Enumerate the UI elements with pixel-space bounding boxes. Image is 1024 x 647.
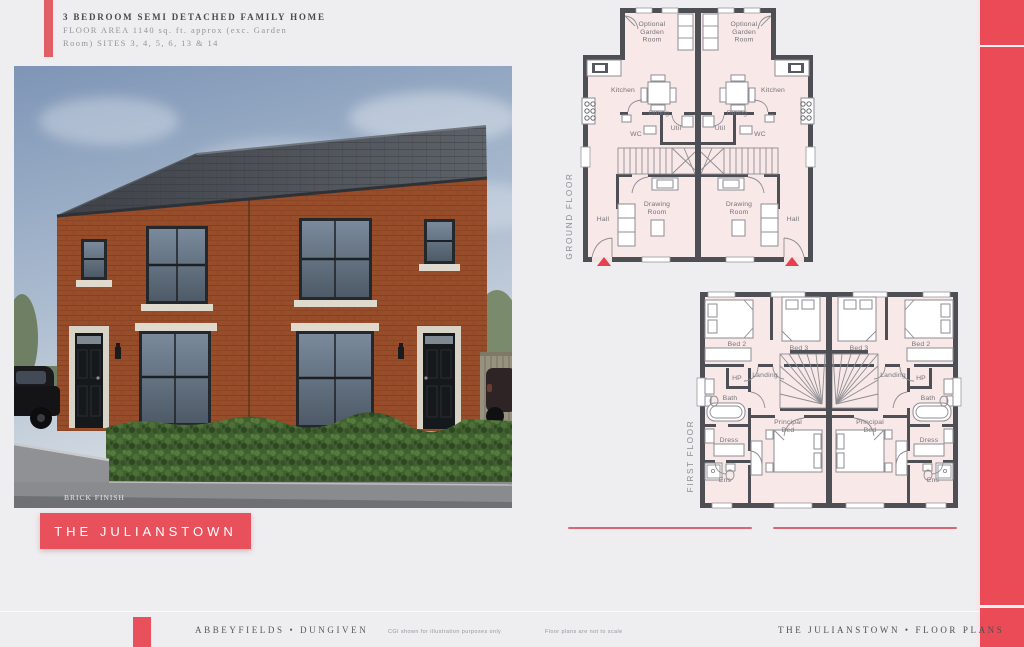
room-bed2-left: Bed 2: [728, 341, 747, 348]
accent-band: [980, 0, 1024, 647]
first-floor-plan: FIRST FLOOR Bed 2 Bed 2 Bed 3 Bed 3 HP H…: [686, 284, 964, 514]
brochure-page: 3 BEDROOM SEMI DETACHED FAMILY HOME FLOO…: [0, 0, 1024, 647]
room-util-right: Util: [715, 125, 726, 132]
room-bed3-right: Bed 3: [850, 345, 869, 352]
room-wc-right: WC: [754, 131, 766, 138]
first-floor-label: FIRST FLOOR: [686, 420, 695, 493]
room-ens-left: Ens: [719, 477, 732, 484]
band-gap-bottom: [980, 605, 1024, 608]
room-dining-left: Dining: [649, 110, 669, 117]
room-drawing-left: DrawingRoom: [644, 201, 670, 216]
window-small-right: [419, 219, 460, 271]
ground-floor-label: GROUND FLOOR: [565, 172, 574, 259]
room-dining-right: Dining: [727, 110, 747, 117]
cgi-disclaimer: CGI shown for illustration purposes only: [388, 629, 501, 635]
accent-bar: [44, 0, 53, 57]
sites-line: Room) SITES 3, 4, 5, 6, 13 & 14: [63, 37, 326, 50]
footer-separator: [0, 611, 980, 612]
scale-disclaimer: Floor plans are not to scale: [545, 629, 623, 635]
plan-underline-left: [568, 527, 752, 529]
floor-area-line: FLOOR AREA 1140 sq. ft. approx (exc. Gar…: [63, 24, 326, 37]
room-bath-left: Bath: [723, 395, 738, 402]
ground-floor-plan: GROUND FLOOR OptionalGardenRoom Optional…: [556, 2, 824, 268]
room-landing-right: Landing: [880, 372, 906, 379]
plot-name-banner: THE JULIANSTOWN: [40, 513, 251, 549]
window-ground-left: [135, 323, 217, 426]
room-kitchen-right: Kitchen: [761, 87, 785, 94]
room-dress-left: Dress: [720, 437, 739, 444]
window-small-left: [76, 239, 112, 287]
room-dress-right: Dress: [920, 437, 939, 444]
room-util-left: Util: [671, 125, 682, 132]
band-gap-top: [980, 45, 1024, 47]
door-right: [417, 326, 461, 429]
window-first-right: [294, 218, 377, 307]
room-bed3-left: Bed 3: [790, 345, 809, 352]
room-hall-left: Hall: [597, 216, 610, 223]
room-hp-right: HP: [916, 375, 926, 382]
window-first-left: [141, 226, 213, 311]
party-wall: [695, 8, 701, 262]
page-footer-title: THE JULIANSTOWN • FLOOR PLANS: [778, 625, 1004, 635]
party-wall: [826, 292, 832, 508]
cgi-render: BRICK FINISH: [14, 66, 512, 508]
window-ground-right: [291, 323, 379, 428]
plot-name: THE JULIANSTOWN: [54, 524, 237, 539]
door-left: [69, 326, 109, 428]
room-ens-right: Ens: [927, 477, 940, 484]
room-wc-left: WC: [630, 131, 642, 138]
page-title: 3 BEDROOM SEMI DETACHED FAMILY HOME: [63, 11, 326, 24]
header-block: 3 BEDROOM SEMI DETACHED FAMILY HOME FLOO…: [63, 11, 326, 50]
footer-accent-bar: [133, 617, 151, 647]
room-bed2-right: Bed 2: [912, 341, 931, 348]
room-kitchen-left: Kitchen: [611, 87, 635, 94]
finish-label: BRICK FINISH: [64, 493, 125, 502]
plan-underline-right: [773, 527, 957, 529]
room-hp-left: HP: [732, 375, 742, 382]
room-landing-left: Landing: [752, 372, 778, 379]
development-name: ABBEYFIELDS • DUNGIVEN: [195, 625, 368, 635]
room-hall-right: Hall: [787, 216, 800, 223]
room-drawing-right: DrawingRoom: [726, 201, 752, 216]
room-bath-right: Bath: [921, 395, 936, 402]
